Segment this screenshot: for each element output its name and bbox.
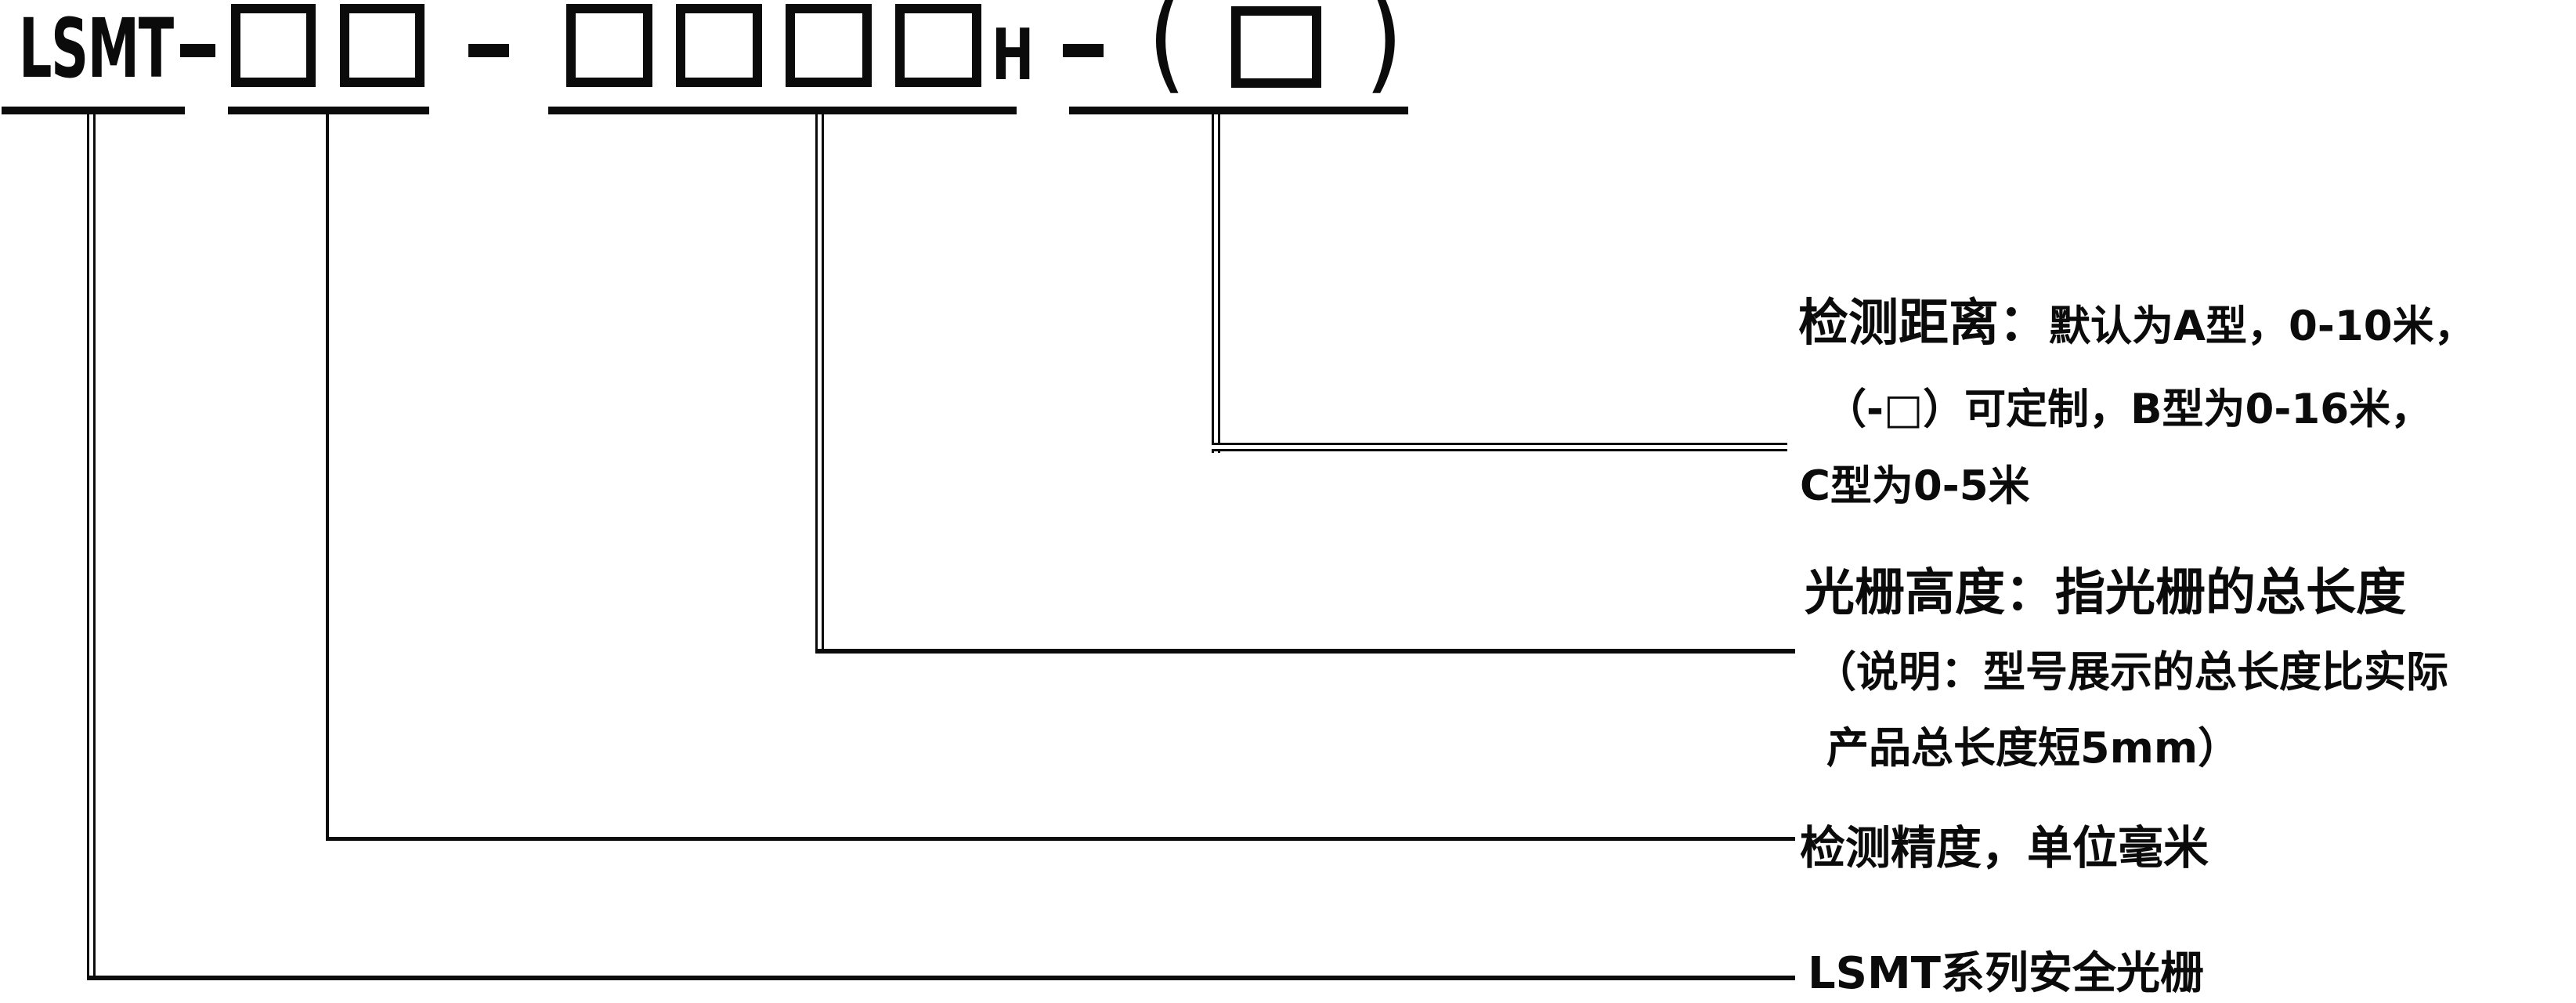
height-callout-line2: （说明：型号展示的总长度比实际: [1814, 647, 2448, 697]
height-callout-line3: 产品总长度短5mm）: [1826, 723, 2240, 773]
model-digit-box: [566, 4, 652, 87]
height-digit-boxes: [566, 4, 981, 87]
series-prefix-text: LSMT: [19, 6, 173, 92]
height-callout-line1-text: 指光栅的总长度: [2055, 564, 2406, 622]
series-callout-text: LSMT系列安全光栅: [1808, 948, 2204, 1000]
model-digit-box: [340, 4, 425, 87]
distance-callout-title: 检测距离：: [1798, 295, 2049, 353]
model-digit-box: [676, 4, 762, 87]
distance-callout-line3: C型为0-5米: [1800, 462, 2030, 512]
connector-precision-horizontal: [326, 837, 1795, 841]
distance-callout-line2: （-□）可定制，B型为0-16米，: [1825, 386, 2432, 435]
precision-callout-text: 检测精度，单位毫米: [1800, 821, 2209, 874]
model-code-diagram: LSMT H ( ) 检测距离：默认为A型，0-10米， （-□）可定制，B型为…: [0, 0, 2576, 1003]
distance-callout-line1-text: 默认为A型，0-10米，: [2049, 302, 2476, 350]
dash-separator-1: [180, 44, 215, 57]
precision-digit-boxes: [231, 4, 425, 87]
connector-height-horizontal: [815, 649, 1795, 654]
model-digit-box: [1231, 6, 1321, 88]
dash-separator-2: [468, 44, 509, 57]
connector-series-vertical: [87, 114, 96, 979]
close-paren: ): [1364, 0, 1404, 96]
model-digit-box: [895, 4, 981, 87]
connector-distance-horizontal: [1212, 443, 1787, 451]
distance-callout-line1: 检测距离：默认为A型，0-10米，: [1798, 295, 2476, 354]
connector-precision-vertical: [326, 114, 329, 841]
underline-series: [2, 107, 185, 114]
open-paren: (: [1147, 0, 1187, 96]
height-callout-line1: 光栅高度：指光栅的总长度: [1805, 564, 2406, 624]
underline-distance: [1069, 107, 1408, 114]
connector-height-vertical: [815, 114, 824, 654]
underline-precision: [228, 107, 429, 114]
connector-distance-vertical: [1212, 114, 1220, 453]
model-digit-box: [231, 4, 316, 87]
dash-separator-3: [1063, 44, 1104, 57]
underline-height: [548, 107, 1017, 114]
height-suffix-letter: H: [992, 20, 1034, 91]
distance-digit-box: [1231, 6, 1321, 88]
model-digit-box: [786, 4, 872, 87]
connector-series-horizontal: [87, 976, 1795, 980]
height-callout-title: 光栅高度：: [1805, 564, 2055, 622]
